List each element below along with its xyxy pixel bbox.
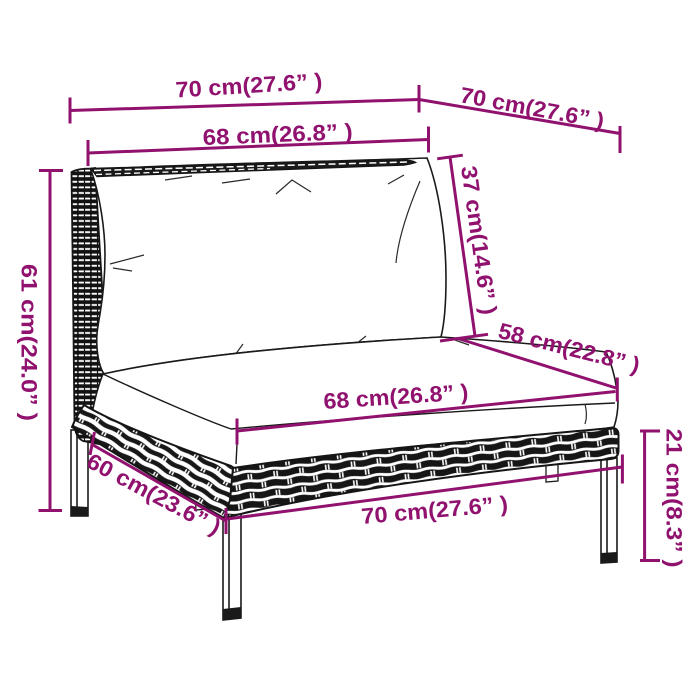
- svg-text:21 cm(8.3” ): 21 cm(8.3” ): [662, 429, 687, 568]
- svg-text:61 cm(24.0” ): 61 cm(24.0” ): [17, 264, 42, 421]
